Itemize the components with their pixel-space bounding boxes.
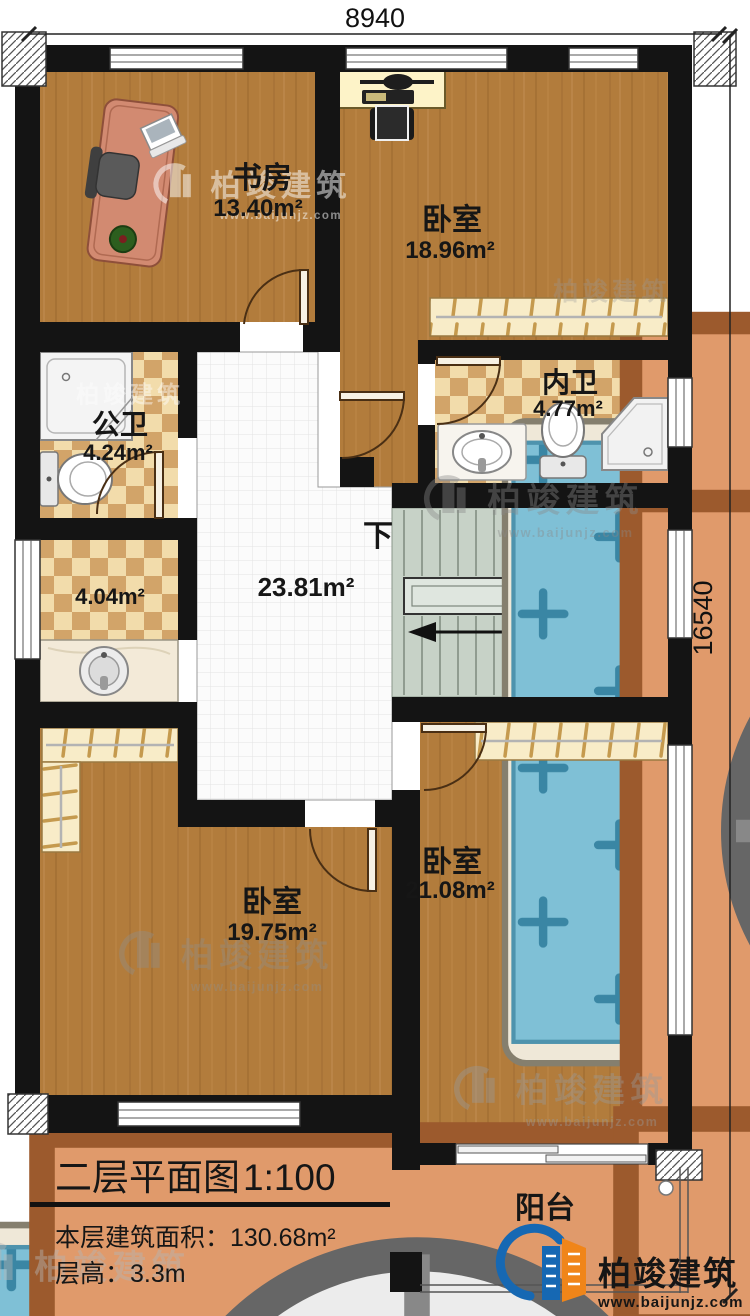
- floor-height-line: 层高：3.3m: [55, 1260, 186, 1288]
- brand-name: 柏竣建筑: [598, 1255, 738, 1292]
- bedroom-right-wardrobe: [475, 722, 668, 760]
- corner-post: [656, 1150, 702, 1180]
- plan-title: 二层平面图: [55, 1157, 240, 1198]
- bedroom-right-area: 21.08m²: [405, 877, 494, 904]
- floor-plan-drawing: 柏竣建筑 www.baijunjz.com 柏竣建筑 柏竣建筑 www.baij…: [0, 0, 750, 1316]
- watermark-text: 柏竣建筑: [553, 277, 671, 306]
- bedroom-left-area: 19.75m²: [227, 919, 316, 946]
- floor-area-line: 本层建筑面积：130.68m²: [55, 1224, 336, 1252]
- plan-scale: 1:100: [243, 1157, 336, 1198]
- floor-plan-page: 柏竣建筑 www.baijunjz.com 柏竣建筑 柏竣建筑 www.baij…: [0, 0, 750, 1316]
- watermark-site: www.baijunjz.com: [525, 1115, 659, 1129]
- bedroom-right-name: 卧室: [422, 845, 482, 879]
- bedroom-top-chair: [370, 106, 414, 140]
- watermark-site: www.baijunjz.com: [497, 525, 634, 540]
- window: [668, 378, 692, 447]
- watermark-text: 柏竣建筑: [516, 1071, 669, 1108]
- bedroom-top-dresser: [337, 70, 445, 108]
- dimension-right-value: 16540: [688, 580, 718, 655]
- inner-bath-area: 4.77m²: [533, 396, 603, 421]
- public-bath-area: 4.24m²: [83, 440, 153, 465]
- title-divider: [30, 1202, 390, 1207]
- bedroom-left-name: 卧室: [242, 885, 302, 919]
- watermark-text: 柏竣建筑: [487, 480, 644, 519]
- inner-bath-sink: [438, 424, 526, 480]
- study-name: 书房: [232, 162, 292, 195]
- window: [118, 1102, 300, 1126]
- window: [346, 48, 507, 69]
- watermark: 柏竣建筑: [553, 277, 671, 306]
- dimension-top: 8940: [22, 3, 726, 41]
- hall-area-label: 23.81m²: [258, 572, 355, 602]
- wash-area-label: 4.04m²: [75, 584, 145, 609]
- inner-bath-name: 内卫: [542, 367, 598, 398]
- balcony-column: [659, 1181, 673, 1195]
- window: [668, 745, 692, 1035]
- watermark-text: 柏竣建筑: [76, 381, 184, 407]
- bedroom-top-name: 卧室: [422, 203, 482, 237]
- brand-site: www.baijunjz.com: [597, 1294, 743, 1311]
- bedroom-top-area: 18.96m²: [405, 237, 494, 264]
- wash-area-vanity: [40, 640, 178, 702]
- study-area: 13.40m²: [213, 195, 302, 222]
- window: [569, 48, 638, 69]
- balcony-sliding-door: [456, 1144, 648, 1164]
- watermark-site: www.baijunjz.com: [190, 980, 324, 994]
- watermark: 柏竣建筑: [76, 381, 184, 407]
- window: [110, 48, 243, 69]
- dimension-top-value: 8940: [345, 3, 405, 33]
- stairs-down-label: 下: [363, 520, 393, 553]
- corner-post: [8, 1094, 48, 1134]
- window: [15, 540, 40, 659]
- balcony-name: 阳台: [515, 1191, 575, 1225]
- public-bath-name: 公卫: [92, 409, 148, 440]
